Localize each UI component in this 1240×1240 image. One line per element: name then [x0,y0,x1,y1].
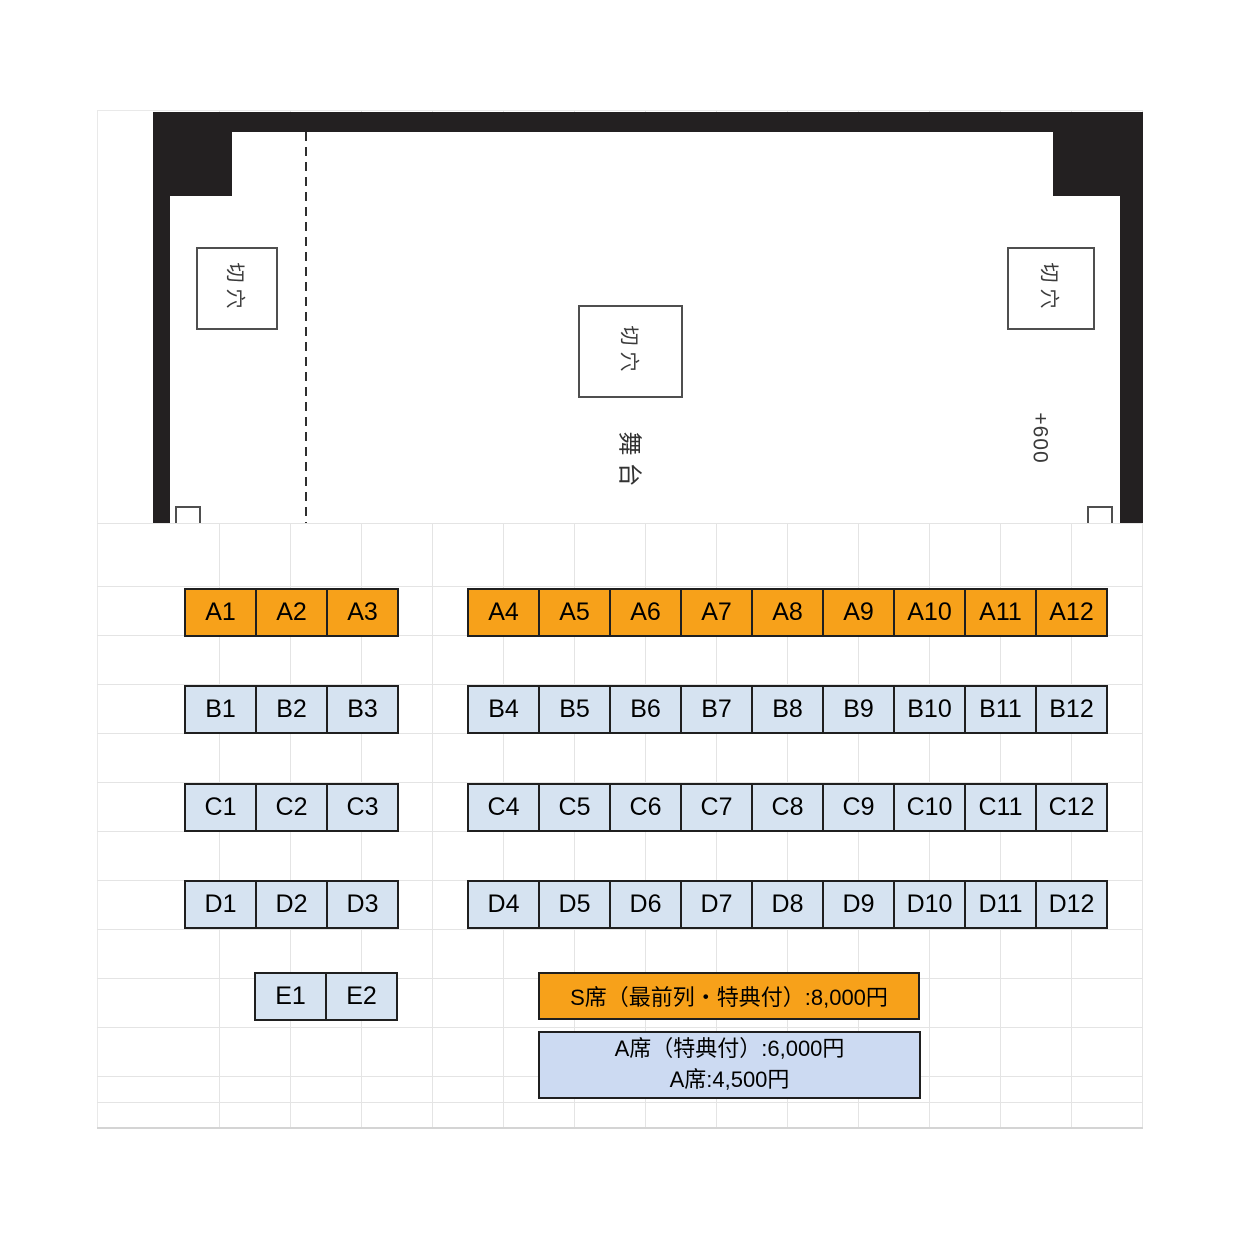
gridline-row [97,929,1143,930]
seat-B6[interactable]: B6 [609,685,682,734]
trapdoor-box-right: 切穴 [1007,247,1095,330]
seat-C11[interactable]: C11 [964,783,1037,832]
seat-C9[interactable]: C9 [822,783,895,832]
seat-C7[interactable]: C7 [680,783,753,832]
seat-row-C-left: C1C2C3 [184,783,399,832]
legend-a-seat-line1: A席（特典付）:6,000円 [615,1034,845,1065]
seat-D12[interactable]: D12 [1035,880,1108,929]
seat-C2[interactable]: C2 [255,783,328,832]
seat-B9[interactable]: B9 [822,685,895,734]
seat-D10[interactable]: D10 [893,880,966,929]
trapdoor-box-center: 切穴 [578,305,683,398]
seat-E1[interactable]: E1 [254,972,327,1021]
gridline-row [97,586,1143,587]
seat-D4[interactable]: D4 [467,880,540,929]
trapdoor-box-left: 切穴 [196,247,278,330]
seat-A9[interactable]: A9 [822,588,895,637]
seat-row-E-left: E1E2 [254,972,398,1021]
stage-elevation-wrap: +600 [1012,405,1068,471]
stage-wall-top [153,112,1143,132]
seat-D7[interactable]: D7 [680,880,753,929]
seat-row-B-left: B1B2B3 [184,685,399,734]
stage-corner-block-right [1053,112,1143,196]
gridline-row [97,523,1143,524]
seat-C1[interactable]: C1 [184,783,257,832]
stage-elevation-label: +600 [1028,412,1052,463]
legend-s-seat: S席（最前列・特典付）:8,000円 [538,972,920,1020]
gridline-left-edge [97,110,98,1128]
seat-row-A-right: A4A5A6A7A8A9A10A11A12 [467,588,1108,637]
seat-B11[interactable]: B11 [964,685,1037,734]
seat-A2[interactable]: A2 [255,588,328,637]
seat-A11[interactable]: A11 [964,588,1037,637]
seat-C4[interactable]: C4 [467,783,540,832]
seat-C5[interactable]: C5 [538,783,611,832]
seat-A7[interactable]: A7 [680,588,753,637]
stage-corner-block-left [153,112,232,196]
seat-C8[interactable]: C8 [751,783,824,832]
gridline-row [97,1027,1143,1028]
seat-B1[interactable]: B1 [184,685,257,734]
seat-E2[interactable]: E2 [325,972,398,1021]
stage-dashed-divider [305,132,307,523]
gridline-bottom-edge [97,1127,1143,1129]
seat-row-C-right: C4C5C6C7C8C9C10C11C12 [467,783,1108,832]
legend-a-seat: A席（特典付）:6,000円 A席:4,500円 [538,1031,921,1099]
seat-A12[interactable]: A12 [1035,588,1108,637]
gridline-top-edge [97,110,1143,111]
seat-B3[interactable]: B3 [326,685,399,734]
seat-D1[interactable]: D1 [184,880,257,929]
seat-D6[interactable]: D6 [609,880,682,929]
seat-A6[interactable]: A6 [609,588,682,637]
seat-A1[interactable]: A1 [184,588,257,637]
seat-C3[interactable]: C3 [326,783,399,832]
seat-A4[interactable]: A4 [467,588,540,637]
stage-step-left [175,506,201,523]
seat-B12[interactable]: B12 [1035,685,1108,734]
seat-D3[interactable]: D3 [326,880,399,929]
seat-row-A-left: A1A2A3 [184,588,399,637]
legend-a-seat-line2: A席:4,500円 [670,1065,790,1096]
seat-B10[interactable]: B10 [893,685,966,734]
seat-row-D-left: D1D2D3 [184,880,399,929]
seat-row-D-right: D4D5D6D7D8D9D10D11D12 [467,880,1108,929]
seat-D9[interactable]: D9 [822,880,895,929]
seat-A10[interactable]: A10 [893,588,966,637]
seat-C12[interactable]: C12 [1035,783,1108,832]
seat-B5[interactable]: B5 [538,685,611,734]
seat-D2[interactable]: D2 [255,880,328,929]
seat-D8[interactable]: D8 [751,880,824,929]
seat-A5[interactable]: A5 [538,588,611,637]
seat-B8[interactable]: B8 [751,685,824,734]
legend-s-seat-label: S席（最前列・特典付）:8,000円 [570,980,888,1012]
trapdoor-label: 切穴 [616,326,645,378]
seat-row-B-right: B4B5B6B7B8B9B10B11B12 [467,685,1108,734]
seat-C10[interactable]: C10 [893,783,966,832]
stage-step-right [1087,506,1113,523]
trapdoor-label: 切穴 [1037,263,1066,315]
stage-label: 舞台 [615,431,650,493]
gridline-row [97,1102,1143,1103]
stage-label-wrap: 舞台 [604,426,660,498]
seat-D11[interactable]: D11 [964,880,1037,929]
seat-A3[interactable]: A3 [326,588,399,637]
seat-B7[interactable]: B7 [680,685,753,734]
seating-chart-page: 切穴 切穴 切穴 舞台 +600 A1A2A3A4A5A6A7A8A9A10A1… [0,0,1240,1240]
seat-B2[interactable]: B2 [255,685,328,734]
seat-C6[interactable]: C6 [609,783,682,832]
trapdoor-label: 切穴 [223,263,252,315]
seat-A8[interactable]: A8 [751,588,824,637]
seat-D5[interactable]: D5 [538,880,611,929]
seat-B4[interactable]: B4 [467,685,540,734]
